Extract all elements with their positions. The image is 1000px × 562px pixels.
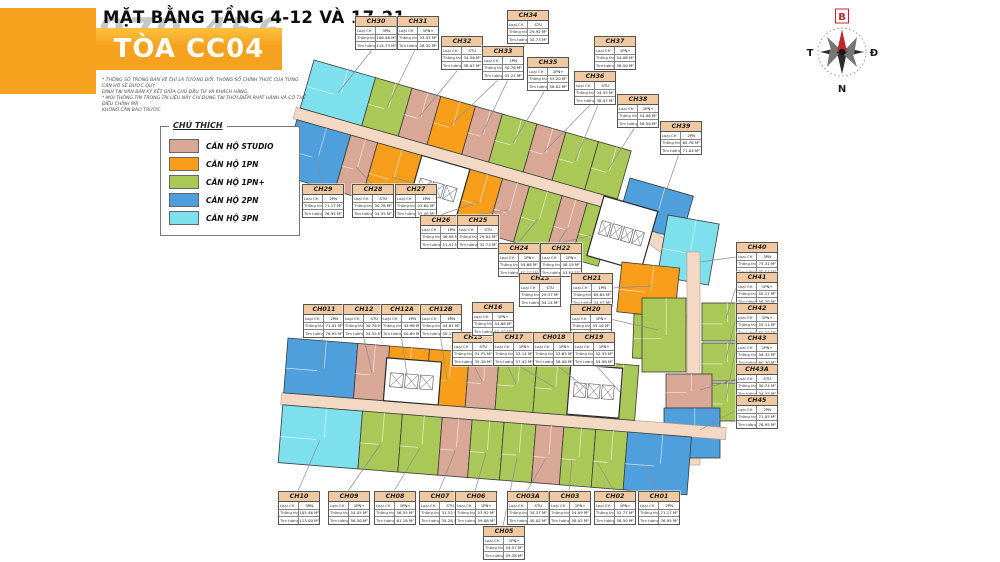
- spec-key: Loại CH: [520, 284, 540, 291]
- unit-spec-row: Thông thủy54.06 M²: [618, 113, 658, 121]
- unit-spec-row: Loại CH1PN+: [595, 47, 635, 55]
- spec-key: Loại CH: [375, 502, 395, 509]
- spec-key: Loại CH: [528, 68, 548, 75]
- spec-value: 1PN: [592, 284, 612, 291]
- spec-value: STU: [540, 284, 560, 291]
- spec-value: 1PN+: [561, 254, 581, 261]
- unit-spec-row: Tim tường50.69 M²: [382, 330, 422, 337]
- unit-spec-row: Loại CH1PN+: [571, 315, 611, 323]
- unit-spec-row: Loại CH2PN: [661, 132, 701, 140]
- spec-value: 29.37 M²: [540, 292, 560, 299]
- unit-spec-row: Thông thủy71.17 M²: [303, 203, 343, 211]
- unit-spec-row: Thông thủy54.05 M²: [329, 510, 369, 518]
- spec-key: Loại CH: [483, 57, 503, 64]
- spec-value: 55.27 M²: [503, 72, 523, 79]
- unit-spec-row: Thông thủy30.74 M²: [737, 383, 777, 391]
- spec-key: Loại CH: [737, 314, 757, 321]
- unit-callout-CH011: CH011Loại CH2PNThông thủy71.01 M²Tim tườ…: [303, 304, 345, 338]
- spec-key: Loại CH: [484, 537, 504, 544]
- unit-id-label: CH19: [574, 333, 614, 343]
- spec-key: Loại CH: [508, 502, 528, 509]
- spec-value: STU: [373, 195, 393, 202]
- spec-key: Tim tường: [356, 42, 376, 49]
- unit-callout-CH41: CH41Loại CH1PN+Thông thủy52.17 M²Tim tườ…: [736, 272, 778, 306]
- unit-spec-row: Loại CHSTU: [344, 315, 384, 323]
- spec-key: Loại CH: [575, 82, 595, 89]
- unit-id-label: CH22: [541, 244, 581, 254]
- spec-value: 59.08 M²: [476, 517, 496, 524]
- spec-value: 53.65 M²: [554, 351, 574, 358]
- unit-id-label: CH20: [571, 305, 611, 315]
- spec-key: Loại CH: [353, 195, 373, 202]
- spec-value: 1PN+: [638, 105, 658, 112]
- spec-key: Loại CH: [494, 343, 514, 350]
- spec-key: Thông thủy: [279, 510, 299, 517]
- spec-key: Thông thủy: [483, 65, 503, 72]
- spec-value: 54.68 M²: [519, 262, 539, 269]
- unit-spec-row: Thông thủy52.77 M²: [595, 510, 635, 518]
- unit-spec-row: Loại CH1PN+: [398, 27, 438, 35]
- unit-callout-CH38: CH38Loại CH1PN+Thông thủy54.06 M²Tim tườ…: [617, 94, 659, 128]
- spec-value: 52.77 M²: [615, 510, 635, 517]
- spec-key: Thông thủy: [520, 292, 540, 299]
- unit-spec-row: Thông thủy58.35 M²: [737, 352, 777, 360]
- spec-key: Tim tường: [484, 552, 504, 559]
- unit-id-label: CH21: [572, 274, 612, 284]
- spec-key: Thông thủy: [353, 203, 373, 210]
- unit-id-label: CH30: [356, 17, 396, 27]
- spec-key: Loại CH: [508, 21, 528, 28]
- spec-value: 54.90 M²: [594, 358, 614, 365]
- unit-callout-CH21: CH21Loại CH1PNThông thủy69.84 M²Tim tườn…: [571, 273, 613, 307]
- spec-key: Tim tường: [382, 330, 402, 337]
- spec-key: Thông thủy: [344, 323, 364, 330]
- unit-callout-CH15: CH15Loại CHSTUThông thủy31.75 M²Tim tườn…: [452, 332, 494, 366]
- spec-value: 34.14 M²: [540, 299, 560, 306]
- spec-value: 1PN+: [757, 344, 777, 351]
- unit-spec-row: Loại CH1PN: [572, 284, 612, 292]
- unit-spec-row: Thông thủy53.65 M²: [534, 351, 574, 359]
- unit-spec-row: Thông thủy53.14 M²: [494, 351, 534, 359]
- unit-id-label: CH37: [595, 37, 635, 47]
- spec-key: Loại CH: [421, 315, 441, 322]
- unit-spec-row: Tim tường76.95 M²: [639, 517, 679, 524]
- unit-id-label: CH12B: [421, 305, 461, 315]
- spec-value: 40.02 M²: [528, 517, 548, 524]
- spec-key: Thông thủy: [737, 291, 757, 298]
- unit-spec-row: Thông thủy34.55 M²: [575, 90, 615, 98]
- spec-value: 2PN: [324, 315, 344, 322]
- unit-spec-row: Thông thủy53.92 M²: [456, 510, 496, 518]
- unit-spec-row: Loại CH1PN+: [737, 283, 777, 291]
- spec-value: 54.68 M²: [493, 321, 513, 328]
- spec-key: Thông thủy: [508, 510, 528, 517]
- spec-key: Tim tường: [421, 330, 441, 337]
- spec-value: 3PN: [757, 253, 777, 260]
- spec-key: Tim tường: [574, 358, 594, 365]
- unit-spec-row: Tim tường114.73 M²: [356, 42, 396, 49]
- unit-spec-row: Thông thủy53.60 M²: [396, 203, 436, 211]
- spec-value: 71.17 M²: [659, 510, 679, 517]
- spec-value: 58.50 M²: [349, 517, 369, 524]
- unit-id-label: CH02: [595, 492, 635, 502]
- spec-key: Thông thủy: [571, 323, 591, 330]
- unit-spec-row: Loại CH1PN+: [528, 68, 568, 76]
- unit-spec-row: Thông thủy29.37 M²: [520, 292, 560, 300]
- unit-callout-CH06: CH06Loại CH1PN+Thông thủy53.92 M²Tim tườ…: [455, 491, 497, 525]
- spec-key: Thông thủy: [639, 510, 659, 517]
- unit-id-label: CH39: [661, 122, 701, 132]
- spec-value: 114.73 M²: [376, 42, 396, 49]
- spec-key: Tim tường: [421, 241, 441, 248]
- unit-callout-CH39: CH39Loại CH2PNThông thủy65.76 M²Tim tườn…: [660, 121, 702, 155]
- spec-value: 1PN+: [554, 343, 574, 350]
- spec-value: STU: [528, 21, 548, 28]
- unit-spec-row: Tim tường38.47 M²: [575, 97, 615, 104]
- spec-key: Loại CH: [595, 47, 615, 54]
- unit-spec-row: Loại CHSTU: [508, 21, 548, 29]
- spec-value: 29.04 M²: [478, 234, 498, 241]
- compass-label-south: N: [838, 84, 846, 95]
- unit-spec-row: Thông thủy34.50 M²: [442, 55, 482, 63]
- spec-key: Thông thủy: [442, 55, 462, 62]
- unit-spec-row: Thông thủy29.92 M²: [508, 29, 548, 37]
- spec-value: 54.09 M²: [570, 510, 590, 517]
- unit-spec-row: Thông thủy53.20 M²: [528, 76, 568, 84]
- unit-id-label: CH018: [534, 333, 574, 343]
- spec-value: 34.50 M²: [462, 55, 482, 62]
- spec-key: Thông thủy: [396, 203, 416, 210]
- unit-id-label: CH03A: [508, 492, 548, 502]
- spec-key: Tim tường: [737, 421, 757, 428]
- spec-value: 38.47 M²: [595, 97, 615, 104]
- spec-key: Loại CH: [618, 105, 638, 112]
- spec-key: Thông thủy: [737, 352, 757, 359]
- unit-spec-row: Tim tường76.95 M²: [304, 330, 344, 337]
- unit-spec-row: Thông thủy45.96 M²: [382, 323, 422, 331]
- spec-value: 44.81 M²: [441, 323, 461, 330]
- unit-spec-row: Loại CH1PN: [396, 195, 436, 203]
- spec-value: 53.20 M²: [548, 76, 568, 83]
- unit-spec-row: Thông thủy34.37 M²: [508, 510, 548, 518]
- spec-value: 1PN+: [757, 314, 777, 321]
- spec-key: Loại CH: [396, 195, 416, 202]
- spec-key: Tim tường: [499, 269, 519, 276]
- unit-spec-row: Tim tường34.14 M²: [520, 299, 560, 306]
- unit-callout-CH12A: CH12ALoại CH1PNThông thủy45.96 M²Tim tườ…: [381, 304, 423, 338]
- unit-spec-row: Loại CH1PN+: [618, 105, 658, 113]
- spec-key: Loại CH: [356, 27, 376, 34]
- unit-callout-CH36: CH36Loại CHSTUThông thủy34.55 M²Tim tườn…: [574, 71, 616, 105]
- spec-value: 2PN: [659, 502, 679, 509]
- spec-key: Loại CH: [737, 253, 757, 260]
- spec-value: 30.74 M²: [757, 383, 777, 390]
- unit-id-label: CH07: [420, 492, 460, 502]
- unit-spec-row: Loại CH1PN+: [499, 254, 539, 262]
- spec-key: Tim tường: [329, 517, 349, 524]
- unit-spec-row: Tim tường58.50 M²: [595, 62, 635, 69]
- spec-value: 58.50 M²: [615, 517, 635, 524]
- spec-value: 1PN+: [591, 315, 611, 322]
- unit-id-label: CH40: [737, 243, 777, 253]
- spec-value: 1PN: [503, 57, 523, 64]
- unit-spec-row: Thông thủy54.09 M²: [550, 510, 590, 518]
- spec-key: Tim tường: [398, 42, 418, 49]
- spec-key: Tim tường: [458, 241, 478, 248]
- spec-key: Thông thủy: [737, 261, 757, 268]
- unit-spec-row: Tim tường58.50 M²: [329, 517, 369, 524]
- unit-spec-row: Loại CH2PN: [304, 315, 344, 323]
- spec-value: 1PN+: [519, 254, 539, 261]
- unit-id-label: CH10: [279, 492, 319, 502]
- unit-spec-row: Thông thủy30.76 M²: [353, 203, 393, 211]
- spec-key: Loại CH: [572, 284, 592, 291]
- unit-spec-row: Loại CH1PN+: [737, 344, 777, 352]
- unit-callout-CH27: CH27Loại CH1PNThông thủy53.60 M²Tim tườn…: [395, 184, 437, 218]
- spec-value: 65.76 M²: [681, 140, 701, 147]
- unit-spec-row: Thông thủy56.55 M²: [375, 510, 415, 518]
- spec-value: 3PN: [299, 502, 319, 509]
- unit-spec-row: Thông thủy31.53 M²: [420, 510, 460, 518]
- spec-key: Tim tường: [508, 517, 528, 524]
- unit-id-label: CH09: [329, 492, 369, 502]
- unit-spec-row: Tim tường34.55 M²: [344, 330, 384, 337]
- spec-key: Tim tường: [520, 299, 540, 306]
- spec-value: 71.01 M²: [324, 323, 344, 330]
- spec-key: Loại CH: [737, 375, 757, 382]
- spec-key: Thông thủy: [398, 35, 418, 42]
- spec-value: 76.95 M²: [323, 210, 343, 217]
- spec-key: Loại CH: [398, 27, 418, 34]
- unit-spec-row: Loại CH1PN+: [329, 502, 369, 510]
- spec-key: Thông thủy: [484, 545, 504, 552]
- unit-callout-CH018: CH018Loại CH1PN+Thông thủy53.65 M²Tim tư…: [533, 332, 575, 366]
- spec-value: 75.31 M²: [757, 261, 777, 268]
- unit-spec-row: Tim tường58.02 M²: [528, 83, 568, 90]
- unit-spec-row: Thông thủy105.46 M²: [279, 510, 319, 518]
- unit-callout-CH32: CH32Loại CHSTUThông thủy34.50 M²Tim tườn…: [441, 36, 483, 70]
- unit-spec-row: Thông thủy54.57 M²: [484, 545, 524, 553]
- unit-spec-row: Thông thủy54.68 M²: [499, 262, 539, 270]
- unit-spec-row: Loại CH2PN: [737, 406, 777, 414]
- unit-spec-row: Loại CH1PN+: [737, 314, 777, 322]
- spec-value: 53.60 M²: [416, 203, 436, 210]
- unit-callout-CH16: CH16Loại CH1PN+Thông thủy54.68 M²Tim tườ…: [472, 302, 514, 336]
- unit-id-label: CH33: [483, 47, 523, 57]
- unit-id-label: CH01: [639, 492, 679, 502]
- spec-key: Tim tường: [541, 269, 561, 276]
- spec-value: 58.05 M²: [570, 517, 590, 524]
- spec-value: 34.55 M²: [373, 210, 393, 217]
- spec-value: 1PN+: [476, 502, 496, 509]
- spec-value: STU: [595, 82, 615, 89]
- spec-key: Thông thủy: [494, 351, 514, 358]
- spec-key: Loại CH: [329, 502, 349, 509]
- spec-key: Thông thủy: [382, 323, 402, 330]
- unit-callout-CH42: CH42Loại CH1PN+Thông thủy55.11 M²Tim tườ…: [736, 303, 778, 337]
- spec-key: Loại CH: [473, 313, 493, 320]
- spec-value: STU: [462, 47, 482, 54]
- unit-callout-CH01: CH01Loại CH2PNThông thủy71.17 M²Tim tườn…: [638, 491, 680, 525]
- unit-id-label: CH34: [508, 11, 548, 21]
- unit-callout-CH09: CH09Loại CH1PN+Thông thủy54.05 M²Tim tườ…: [328, 491, 370, 525]
- unit-spec-row: Tim tường71.04 M²: [661, 147, 701, 154]
- spec-value: 55.11 M²: [757, 322, 777, 329]
- unit-spec-row: Tim tường34.55 M²: [353, 210, 393, 217]
- unit-id-label: CH12A: [382, 305, 422, 315]
- spec-value: 52.55 M²: [594, 351, 614, 358]
- spec-value: 32.73 M²: [528, 36, 548, 43]
- spec-value: 71.05 M²: [757, 414, 777, 421]
- spec-key: Loại CH: [420, 502, 440, 509]
- spec-key: Tim tường: [528, 83, 548, 90]
- unit-spec-row: Thông thủy55.16 M²: [571, 323, 611, 331]
- spec-value: 54.05 M²: [349, 510, 369, 517]
- unit-id-label: CH28: [353, 185, 393, 195]
- spec-key: Tim tường: [575, 97, 595, 104]
- spec-key: Loại CH: [344, 315, 364, 322]
- spec-key: Tim tường: [303, 210, 323, 217]
- spec-value: 58.08 M²: [554, 358, 574, 365]
- unit-spec-row: Thông thủy71.05 M²: [737, 414, 777, 422]
- compass-label-east: Đ: [870, 48, 878, 59]
- spec-key: Tim tường: [494, 358, 514, 365]
- unit-spec-row: Thông thủy53.55 M²: [398, 35, 438, 43]
- unit-spec-row: Thông thủy48.19 M²: [541, 262, 581, 270]
- unit-spec-row: Loại CHSTU: [737, 375, 777, 383]
- spec-value: 34.55 M²: [595, 90, 615, 97]
- spec-key: Tim tường: [344, 330, 364, 337]
- unit-spec-row: Loại CH3PN: [279, 502, 319, 510]
- compass-hub: [839, 49, 845, 55]
- spec-key: Tim tường: [279, 517, 299, 524]
- spec-key: Thông thủy: [458, 234, 478, 241]
- spec-key: Loại CH: [304, 315, 324, 322]
- spec-value: 54.57 M²: [504, 545, 524, 552]
- spec-key: Thông thủy: [473, 321, 493, 328]
- spec-value: 3PN: [376, 27, 396, 34]
- spec-key: Tim tường: [473, 328, 493, 335]
- spec-value: 29.92 M²: [528, 29, 548, 36]
- spec-key: Thông thủy: [595, 510, 615, 517]
- spec-value: 69.84 M²: [592, 292, 612, 299]
- spec-key: Loại CH: [456, 502, 476, 509]
- spec-key: Thông thủy: [420, 510, 440, 517]
- spec-key: Thông thủy: [375, 510, 395, 517]
- spec-value: 48.19 M²: [561, 262, 581, 269]
- spec-value: 34.37 M²: [528, 510, 548, 517]
- spec-value: 54.06 M²: [615, 55, 635, 62]
- spec-key: Thông thủy: [550, 510, 570, 517]
- unit-spec-row: Loại CHSTU: [458, 226, 498, 234]
- unit-callout-CH12: CH12Loại CHSTUThông thủy30.76 M²Tim tườn…: [343, 304, 385, 338]
- spec-key: Loại CH: [534, 343, 554, 350]
- unit-spec-row: Loại CH1PN+: [473, 313, 513, 321]
- spec-value: 58.50 M²: [638, 120, 658, 127]
- spec-key: Loại CH: [639, 502, 659, 509]
- spec-key: Loại CH: [541, 254, 561, 261]
- compass-north-arrow: [837, 30, 847, 52]
- spec-key: Thông thủy: [661, 140, 681, 147]
- unit-spec-row: Loại CHSTU: [453, 343, 493, 351]
- spec-value: STU: [473, 343, 493, 350]
- unit-spec-row: Loại CHSTU: [442, 47, 482, 55]
- unit-id-label: CH05: [484, 527, 524, 537]
- unit-spec-row: Tim tường32.73 M²: [458, 241, 498, 248]
- spec-key: Thông thủy: [304, 323, 324, 330]
- unit-spec-row: Loại CH1PN: [382, 315, 422, 323]
- unit-spec-row: Loại CH1PN+: [574, 343, 614, 351]
- spec-value: 1PN: [416, 195, 436, 202]
- spec-value: 1PN+: [349, 502, 369, 509]
- unit-spec-row: Tim tường35.28 M²: [420, 517, 460, 524]
- spec-value: 2PN: [757, 406, 777, 413]
- unit-spec-row: Tim tường58.50 M²: [618, 120, 658, 127]
- unit-spec-row: Tim tường61.18 M²: [375, 517, 415, 524]
- spec-key: Loại CH: [737, 283, 757, 290]
- spec-key: Tim tường: [595, 517, 615, 524]
- spec-key: Loại CH: [499, 254, 519, 261]
- spec-key: Tim tường: [353, 210, 373, 217]
- spec-value: 35.30 M²: [473, 358, 493, 365]
- spec-key: Tim tường: [456, 517, 476, 524]
- unit-id-label: CH12: [344, 305, 384, 315]
- unit-spec-row: Loại CH1PN+: [550, 502, 590, 510]
- unit-callout-CH23: CH23Loại CHSTUThông thủy29.37 M²Tim tườn…: [519, 273, 561, 307]
- unit-callout-CH25: CH25Loại CHSTUThông thủy29.04 M²Tim tườn…: [457, 215, 499, 249]
- spec-value: 1PN+: [504, 537, 524, 544]
- spec-key: Tim tường: [375, 517, 395, 524]
- unit-callout-CH03A: CH03ALoại CHSTUThông thủy34.37 M²Tim tườ…: [507, 491, 549, 525]
- unit-spec-row: Tim tường59.38 M²: [484, 552, 524, 559]
- spec-key: Thông thủy: [508, 29, 528, 36]
- spec-value: 1PN+: [594, 343, 614, 350]
- spec-value: 2PN: [681, 132, 701, 139]
- spec-value: 58.32 M²: [418, 42, 438, 49]
- unit-spec-row: Loại CHSTU: [575, 82, 615, 90]
- spec-value: 58.35 M²: [757, 352, 777, 359]
- unit-id-label: CH24: [499, 244, 539, 254]
- spec-value: 32.73 M²: [478, 241, 498, 248]
- spec-value: 76.95 M²: [757, 421, 777, 428]
- spec-value: 1PN+: [570, 502, 590, 509]
- spec-key: Thông thủy: [534, 351, 554, 358]
- unit-spec-row: Tim tường57.45 M²: [494, 358, 534, 365]
- spec-key: Tim tường: [420, 517, 440, 524]
- unit-spec-row: Tim tường35.30 M²: [453, 358, 493, 365]
- spec-key: Thông thủy: [421, 234, 441, 241]
- spec-key: Tim tường: [639, 517, 659, 524]
- spec-value: 58.50 M²: [615, 62, 635, 69]
- unit-spec-row: Loại CH1PN: [421, 226, 461, 234]
- spec-key: Loại CH: [442, 47, 462, 54]
- unit-spec-row: Loại CH3PN: [737, 253, 777, 261]
- spec-key: Tim tường: [508, 36, 528, 43]
- unit-spec-row: Loại CH1PN: [483, 57, 523, 65]
- unit-spec-row: Loại CHSTU: [520, 284, 560, 292]
- spec-value: 1PN+: [493, 313, 513, 320]
- unit-spec-row: Thông thủy52.55 M²: [574, 351, 614, 359]
- spec-value: 53.14 M²: [514, 351, 534, 358]
- spec-value: 53.92 M²: [476, 510, 496, 517]
- unit-spec-row: Loại CH2PN: [639, 502, 679, 510]
- spec-value: 53.55 M²: [418, 35, 438, 42]
- spec-key: Loại CH: [421, 226, 441, 233]
- unit-callout-CH19: CH19Loại CH1PN+Thông thủy52.55 M²Tim tườ…: [573, 332, 615, 366]
- unit-id-label: CH27: [396, 185, 436, 195]
- spec-key: Thông thủy: [499, 262, 519, 269]
- unit-spec-row: Tim tường54.90 M²: [574, 358, 614, 365]
